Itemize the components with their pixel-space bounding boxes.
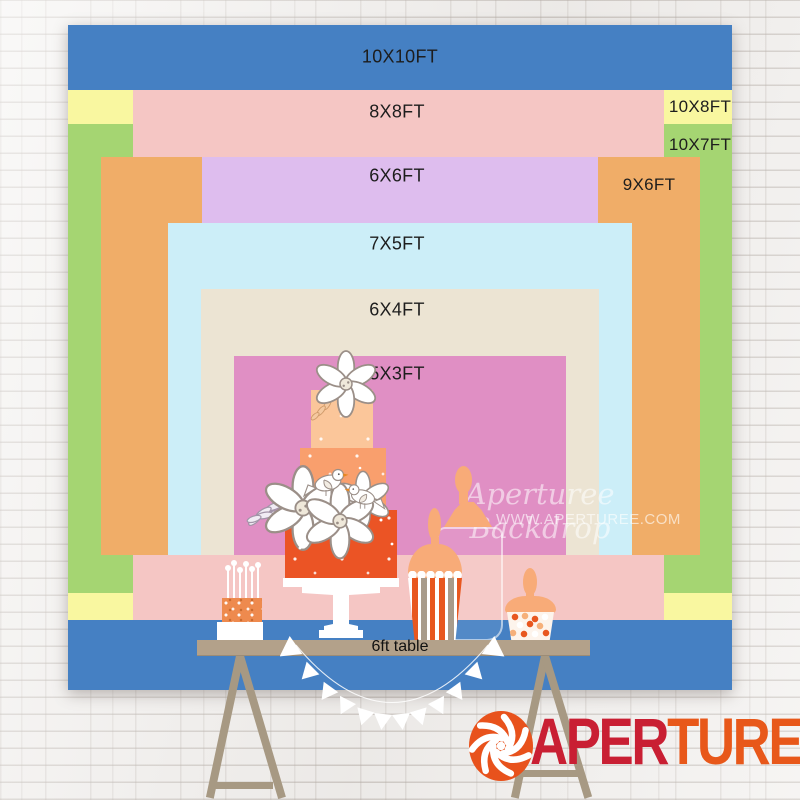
- size-label-8X8FT: 8X8FT: [369, 102, 425, 123]
- logo-text-part2: TUREE: [667, 704, 800, 778]
- cake-flowers-and-birds: [235, 350, 415, 565]
- size-label-6X6FT: 6X6FT: [369, 166, 425, 187]
- logo-wordmark: APERTUREE: [530, 708, 800, 774]
- aperturee-logo: APERTUREE: [464, 704, 800, 792]
- size-label-7X5FT: 7X5FT: [369, 234, 425, 255]
- watermark-url: WWW.APERTUREE.COM: [496, 511, 676, 528]
- jar-dome-lid: [505, 596, 556, 613]
- size-label-10X7FT: 10X7FT: [669, 135, 731, 155]
- candy-cup: [507, 612, 554, 640]
- striped-jar-body: [408, 578, 462, 640]
- size-label-10X8FT: 10X8FT: [669, 97, 731, 117]
- size-label-10X10FT: 10X10FT: [362, 47, 438, 68]
- size-label-9X6FT: 9X6FT: [623, 175, 676, 195]
- candle-cake-base: [217, 622, 263, 640]
- candle-cake-body: [222, 598, 262, 622]
- logo-text-part1: APER: [530, 704, 667, 778]
- size-label-6X4FT: 6X4FT: [369, 300, 425, 321]
- aperture-icon: [466, 708, 536, 784]
- backdrop-size-chart-photo: 10X10FT10X8FT10X7FT8X8FT9X6FT6X6FT7X5FT6…: [0, 0, 800, 800]
